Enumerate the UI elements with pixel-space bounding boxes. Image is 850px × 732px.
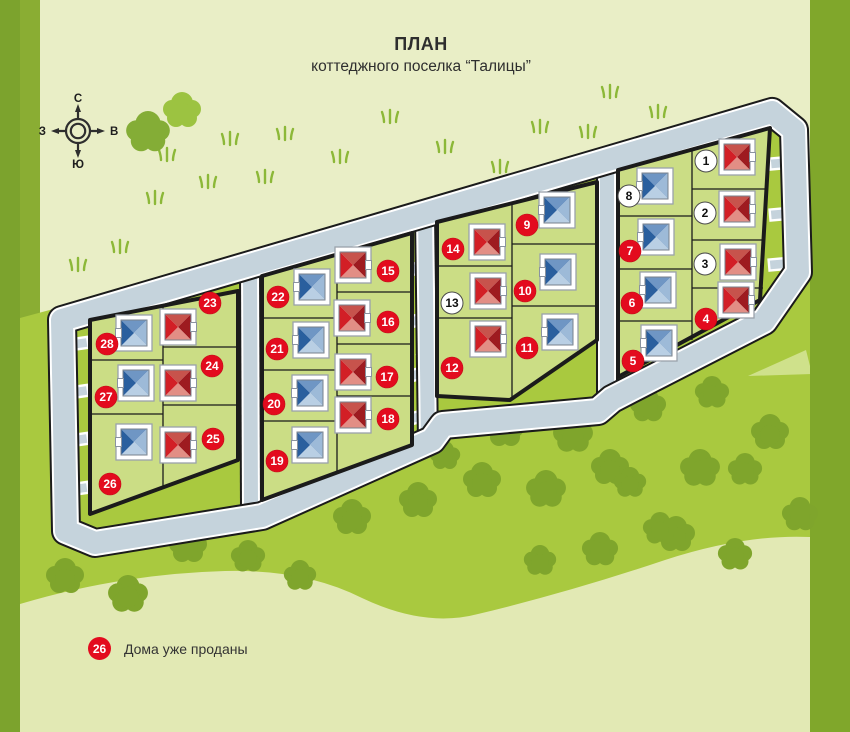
house-porch bbox=[292, 389, 298, 398]
lot-badge-8: 8 bbox=[618, 185, 640, 207]
lot-number: 22 bbox=[271, 290, 285, 304]
lot-number: 11 bbox=[521, 341, 534, 355]
lot-number: 8 bbox=[626, 189, 633, 203]
lot-badge-28: 28 bbox=[96, 333, 118, 355]
lot-badge-2: 2 bbox=[694, 202, 716, 224]
legend-sold-badge: 26 bbox=[88, 637, 111, 660]
lot-number: 6 bbox=[629, 296, 636, 310]
lot-number: 23 bbox=[203, 296, 217, 310]
tree-lobe bbox=[591, 542, 610, 561]
lot-badge-6: 6 bbox=[621, 292, 643, 314]
tree-lobe bbox=[536, 482, 557, 503]
house-porch bbox=[750, 153, 756, 162]
lot-number: 20 bbox=[267, 397, 281, 411]
lot-badge-24: 24 bbox=[201, 355, 223, 377]
lot-number: 9 bbox=[524, 218, 531, 232]
lot-house-13 bbox=[470, 273, 507, 309]
tree-lobe bbox=[563, 427, 584, 448]
lot-badge-15: 15 bbox=[377, 260, 399, 282]
lot-number: 17 bbox=[380, 370, 394, 384]
lot-house-21 bbox=[293, 322, 330, 358]
house-porch bbox=[366, 261, 372, 270]
lot-number: 13 bbox=[445, 296, 459, 310]
lot-house-4 bbox=[718, 282, 755, 318]
lot-number: 10 bbox=[518, 284, 532, 298]
lot-house-15 bbox=[335, 247, 372, 283]
tree-lobe bbox=[639, 398, 658, 417]
house-porch bbox=[116, 329, 122, 338]
lot-badge-12: 12 bbox=[441, 357, 463, 379]
lot-badge-4: 4 bbox=[695, 308, 717, 330]
tree-lobe bbox=[736, 463, 754, 481]
tree-lobe bbox=[55, 569, 75, 589]
lot-number: 2 bbox=[702, 206, 709, 220]
lot-house-2 bbox=[719, 191, 756, 227]
lot-badge-26: 26 bbox=[99, 473, 121, 495]
lot-badge-1: 1 bbox=[695, 150, 717, 172]
tree-lobe bbox=[651, 522, 669, 540]
lot-badge-10: 10 bbox=[514, 280, 536, 302]
lot-number: 25 bbox=[206, 432, 220, 446]
lot-number: 15 bbox=[381, 264, 395, 278]
plan-canvas: 1234567891011121314151617181920212223242… bbox=[0, 0, 850, 732]
lot-badge-13: 13 bbox=[441, 292, 463, 314]
lot-house-20 bbox=[292, 375, 329, 411]
tree-lobe bbox=[342, 510, 362, 530]
lot-house-14 bbox=[469, 224, 506, 260]
house-porch bbox=[292, 441, 298, 450]
house-porch bbox=[749, 296, 755, 305]
house-porch bbox=[366, 368, 372, 377]
house-porch bbox=[539, 206, 545, 215]
lot-badge-17: 17 bbox=[376, 366, 398, 388]
lot-house-8 bbox=[637, 168, 674, 204]
lot-badge-3: 3 bbox=[694, 253, 716, 275]
lot-badge-22: 22 bbox=[267, 286, 289, 308]
lot-house-1 bbox=[719, 139, 756, 175]
lot-badge-5: 5 bbox=[622, 350, 644, 372]
tree-lobe bbox=[137, 124, 160, 147]
lot-house-11 bbox=[542, 314, 579, 350]
tree-lobe bbox=[791, 507, 810, 526]
lot-badge-14: 14 bbox=[442, 238, 464, 260]
house-porch bbox=[641, 339, 647, 348]
tree-lobe bbox=[703, 386, 721, 404]
tree-lobe bbox=[726, 548, 744, 566]
lot-badge-19: 19 bbox=[266, 450, 288, 472]
lot-house-23 bbox=[160, 309, 197, 345]
connector-road-2 bbox=[425, 215, 428, 444]
legend: 26 Дома уже проданы bbox=[88, 637, 248, 660]
compass-label-east: В bbox=[110, 126, 118, 138]
lot-house-18 bbox=[335, 397, 372, 433]
tree-lobe bbox=[622, 476, 639, 493]
lot-number: 28 bbox=[100, 337, 114, 351]
tree-lobe bbox=[292, 569, 309, 586]
house-porch bbox=[638, 233, 644, 242]
lot-number: 3 bbox=[702, 257, 709, 271]
lot-badge-16: 16 bbox=[377, 311, 399, 333]
lot-house-7 bbox=[638, 219, 675, 255]
house-porch bbox=[294, 283, 300, 292]
tree-lobe bbox=[532, 554, 549, 571]
lot-badge-23: 23 bbox=[199, 292, 221, 314]
lot-house-17 bbox=[335, 354, 372, 390]
lot-number: 7 bbox=[627, 244, 634, 258]
house-porch bbox=[366, 411, 372, 420]
lot-badge-20: 20 bbox=[263, 393, 285, 415]
lot-house-6 bbox=[640, 272, 677, 308]
lot-badge-21: 21 bbox=[266, 338, 288, 360]
lot-number: 12 bbox=[445, 361, 459, 375]
lot-badge-27: 27 bbox=[95, 386, 117, 408]
lot-badge-11: 11 bbox=[516, 337, 538, 359]
lot-house-22 bbox=[294, 269, 331, 305]
lot-badge-18: 18 bbox=[377, 408, 399, 430]
lot-house-24 bbox=[160, 365, 197, 401]
house-porch bbox=[501, 287, 507, 296]
house-porch bbox=[751, 258, 757, 267]
lot-house-16 bbox=[334, 300, 371, 336]
house-porch bbox=[191, 323, 197, 332]
lot-house-5 bbox=[641, 325, 678, 361]
tree-lobe bbox=[408, 493, 428, 513]
tree-lobe bbox=[172, 103, 192, 123]
site-plan: 1234567891011121314151617181920212223242… bbox=[0, 0, 850, 732]
lot-badge-25: 25 bbox=[202, 428, 224, 450]
house-porch bbox=[640, 286, 646, 295]
lot-number: 21 bbox=[270, 342, 284, 356]
right-border-strip bbox=[810, 0, 850, 732]
lot-number: 26 bbox=[103, 477, 117, 491]
house-porch bbox=[500, 238, 506, 247]
tree-lobe bbox=[472, 473, 492, 493]
tree-lobe bbox=[239, 550, 257, 568]
house-porch bbox=[365, 314, 371, 323]
lot-number: 24 bbox=[205, 359, 219, 373]
house-porch bbox=[116, 438, 122, 447]
lot-number: 16 bbox=[381, 315, 395, 329]
lot-house-27 bbox=[118, 365, 155, 401]
house-porch bbox=[293, 336, 299, 345]
lot-house-3 bbox=[720, 244, 757, 280]
tree-lobe bbox=[760, 425, 780, 445]
lot-number: 5 bbox=[630, 354, 637, 368]
compass-label-south: Ю bbox=[72, 159, 84, 171]
lot-number: 4 bbox=[703, 312, 710, 326]
tree-lobe bbox=[690, 461, 711, 482]
lot-badge-9: 9 bbox=[516, 214, 538, 236]
tree-lobe bbox=[118, 587, 139, 608]
lot-house-10 bbox=[540, 254, 577, 290]
lot-house-19 bbox=[292, 427, 329, 463]
left-border-strip bbox=[0, 0, 20, 732]
lot-number: 19 bbox=[270, 454, 284, 468]
lot-number: 27 bbox=[99, 390, 113, 404]
legend-sold-text: Дома уже проданы bbox=[124, 641, 248, 657]
lot-house-12 bbox=[470, 321, 507, 357]
lot-house-25 bbox=[160, 427, 197, 463]
house-porch bbox=[750, 205, 756, 214]
house-porch bbox=[540, 268, 546, 277]
lot-house-9 bbox=[539, 192, 576, 228]
compass-label-north: С bbox=[74, 93, 82, 105]
house-porch bbox=[191, 441, 197, 450]
lot-number: 14 bbox=[446, 242, 460, 256]
house-porch bbox=[501, 335, 507, 344]
compass-label-west: З bbox=[39, 126, 46, 138]
lot-house-26 bbox=[116, 424, 153, 460]
connector-road-1 bbox=[250, 268, 251, 508]
lot-badge-7: 7 bbox=[619, 240, 641, 262]
lot-house-28 bbox=[116, 315, 153, 351]
lot-number: 18 bbox=[381, 412, 395, 426]
house-porch bbox=[542, 328, 548, 337]
house-porch bbox=[118, 379, 124, 388]
lot-number: 1 bbox=[703, 154, 710, 168]
house-porch bbox=[191, 379, 197, 388]
